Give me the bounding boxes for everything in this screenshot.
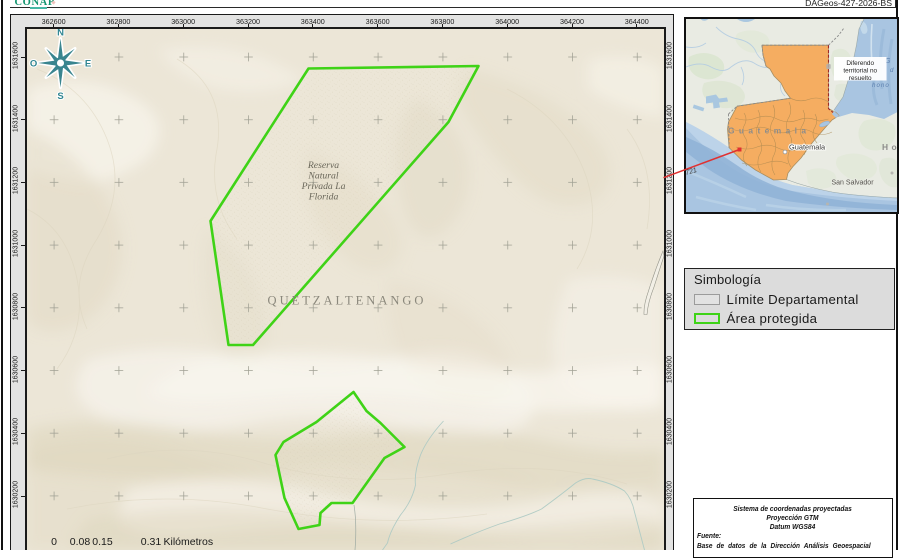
svg-text:Guatemala: Guatemala: [789, 143, 826, 152]
svg-text:N: N: [57, 29, 64, 39]
svg-text:E: E: [84, 59, 90, 70]
svg-text:d: d: [890, 67, 894, 74]
svg-text:QUETZALTENANGO: QUETZALTENANGO: [267, 294, 426, 308]
svg-text:San Salvador: San Salvador: [831, 180, 874, 187]
svg-text:resuelto: resuelto: [848, 75, 871, 82]
svg-text:Diferendo: Diferendo: [846, 60, 874, 67]
svg-text:S: S: [57, 91, 63, 102]
svg-text:Natural: Natural: [307, 171, 338, 182]
svg-text:hono: hono: [872, 82, 890, 89]
svg-text:Privada La: Privada La: [300, 181, 345, 192]
svg-text:Guatemala: Guatemala: [728, 126, 810, 136]
svg-text:territorial no: territorial no: [843, 68, 877, 75]
svg-text:O: O: [29, 59, 36, 70]
svg-text:Ho: Ho: [882, 142, 898, 152]
svg-text:Reserva: Reserva: [306, 160, 338, 171]
svg-text:Florida: Florida: [307, 192, 338, 203]
